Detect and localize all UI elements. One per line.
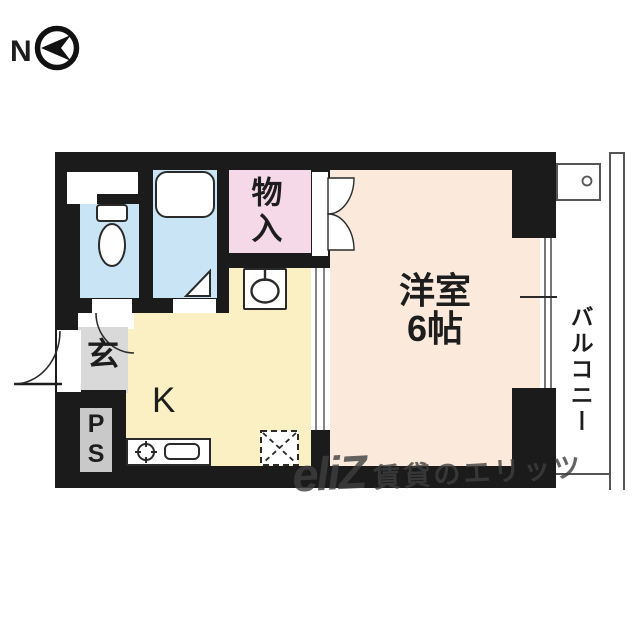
- water-heater-icon: [252, 280, 279, 303]
- balcony-label: バルコニー: [568, 305, 592, 435]
- double-door-swing: [328, 178, 354, 214]
- floor-plan: N PS: [0, 0, 640, 640]
- western-room-name: 洋室: [355, 272, 515, 310]
- closet-label: 物入: [247, 176, 280, 248]
- toilet-bowl-icon: [99, 224, 125, 266]
- washer-pan-drain-icon: [583, 177, 592, 186]
- watermark-text: 賃貸のエリッツ: [373, 452, 584, 493]
- bath-door-triangle: [186, 271, 210, 296]
- double-door-swing: [328, 214, 354, 250]
- entrance-label: 玄: [87, 338, 119, 372]
- watermark-logo: eliZ: [291, 445, 367, 502]
- entrance-door-swing: [14, 331, 60, 384]
- western-room-size: 6帖: [355, 310, 515, 348]
- kitchen-label: K: [152, 383, 175, 420]
- western-room-label: 洋室 6帖: [355, 272, 515, 348]
- plan-linework: [0, 0, 640, 640]
